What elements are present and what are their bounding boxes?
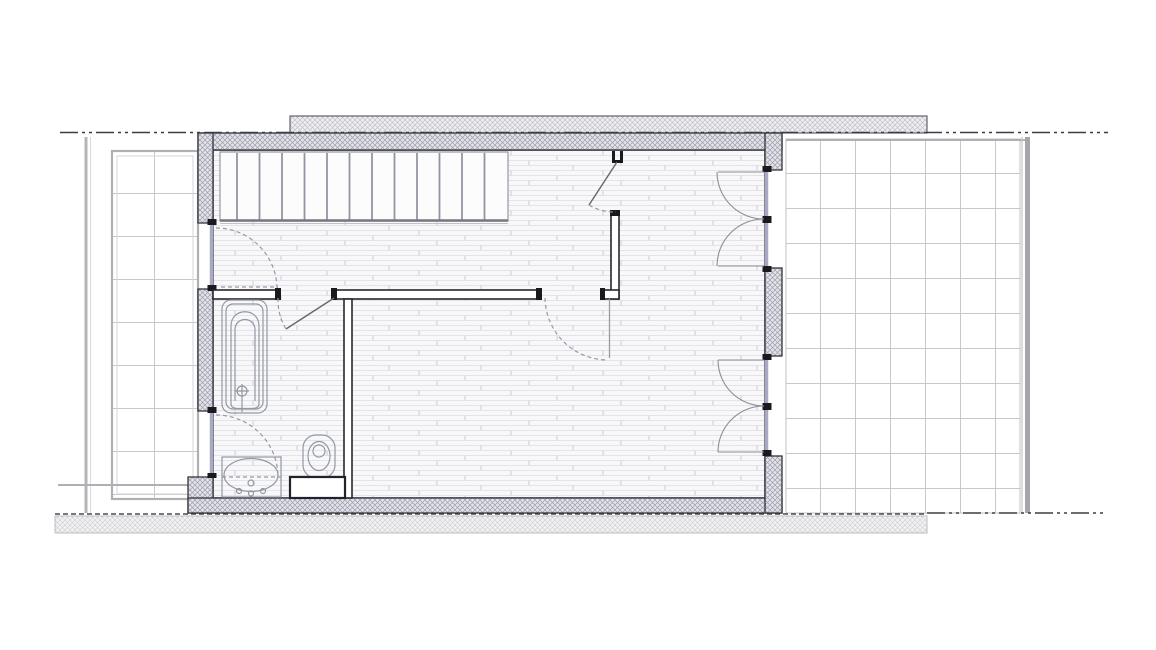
terrace-left — [58, 137, 198, 513]
wall-right-pier-bottom — [765, 456, 782, 513]
partition-bathroom-north-left — [213, 290, 277, 299]
partition-bathroom-north-right — [333, 290, 540, 299]
wall-left-upper — [198, 133, 213, 223]
partition-bathroom-east — [344, 299, 352, 498]
floor-plan-page — [0, 0, 1156, 650]
terrace-right-tiles — [786, 139, 1020, 513]
neighbour-wall-band — [290, 116, 927, 133]
terrace-right — [786, 137, 1030, 513]
cistern-box — [290, 477, 345, 498]
wall-top — [198, 133, 782, 150]
wall-left-middle — [198, 289, 213, 411]
wall-right-pier-top — [765, 133, 782, 170]
wall-right-pier-middle — [765, 268, 782, 356]
stair-outline — [220, 152, 508, 221]
staircase — [220, 152, 508, 224]
ground-strip — [55, 514, 927, 533]
terrace-left-tiles — [112, 151, 198, 499]
partition-hall-L-wall — [611, 212, 619, 299]
wall-bottom — [188, 498, 782, 513]
floor-plan-drawing — [0, 0, 1156, 650]
